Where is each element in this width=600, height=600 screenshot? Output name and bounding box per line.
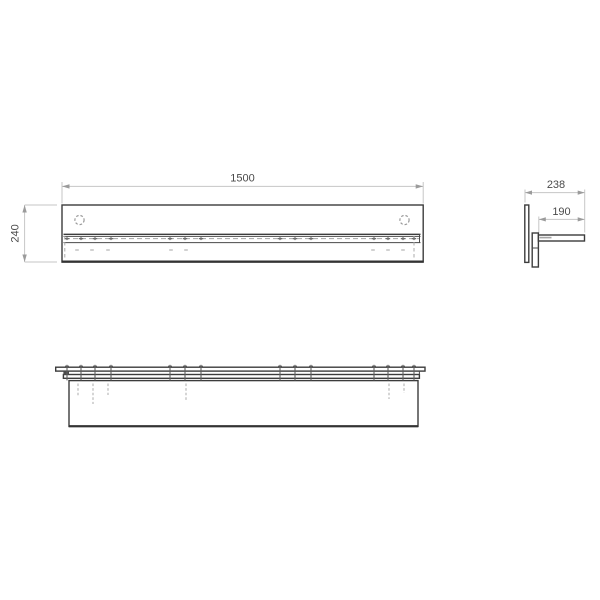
technical-drawing: 1500 240 (0, 0, 600, 600)
dim-width-label: 1500 (230, 173, 254, 185)
wall-plate-front (62, 205, 423, 262)
dim-depth-shelf-label: 190 (552, 206, 570, 218)
dim-arrow-right (578, 217, 585, 221)
dim-arrow-right (416, 184, 424, 188)
dim-height-label: 240 (10, 224, 22, 242)
dim-arrow-right (578, 191, 585, 195)
left-step-joint (63, 371, 69, 375)
dim-arrow-left (539, 217, 546, 221)
top-strip-inner (63, 375, 419, 379)
drawing-canvas: 1500 240 (0, 0, 600, 600)
dim-arrow-left (62, 184, 70, 188)
dim-width: 1500 (62, 173, 423, 204)
wall-plate-side (525, 205, 529, 262)
dim-arrow-left (525, 191, 532, 195)
dim-arrow-bottom (22, 255, 26, 263)
dim-arrow-top (22, 205, 26, 213)
side-view: 238 190 (525, 179, 585, 267)
dim-depth-total-label: 238 (547, 179, 565, 191)
front-view: 1500 240 (10, 173, 424, 263)
shelf-slab-plan (69, 381, 418, 427)
cleat-side (532, 233, 538, 267)
plan-view (56, 365, 425, 427)
dim-height: 240 (10, 205, 58, 262)
dim-depth-shelf: 190 (539, 206, 585, 233)
